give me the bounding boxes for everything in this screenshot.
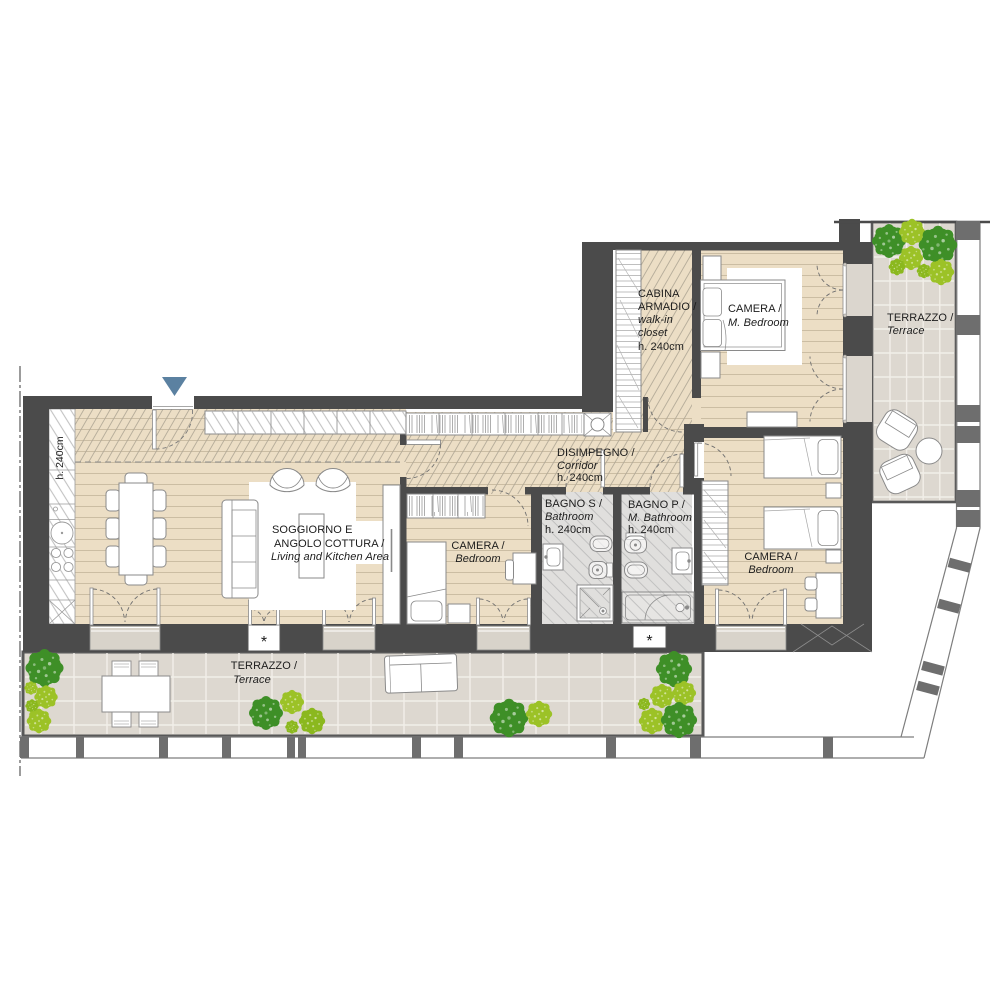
svg-text:Corridor: Corridor — [557, 460, 599, 472]
svg-text:ANGOLO COTTURA /: ANGOLO COTTURA / — [274, 538, 385, 550]
svg-text:CAMERA /: CAMERA / — [744, 551, 798, 563]
svg-text:h. 240cm: h. 240cm — [638, 341, 684, 353]
svg-text:M. Bedroom: M. Bedroom — [728, 317, 789, 329]
svg-text:Bedroom: Bedroom — [748, 564, 793, 576]
svg-text:CABINA: CABINA — [638, 288, 680, 300]
svg-text:Bedroom: Bedroom — [455, 553, 500, 565]
svg-text:h. 240cm: h. 240cm — [545, 524, 591, 536]
svg-text:Terrace: Terrace — [887, 325, 925, 337]
svg-text:closet: closet — [638, 327, 668, 339]
svg-text:h. 240cm: h. 240cm — [557, 472, 603, 484]
svg-text:Living and Kitchen Area: Living and Kitchen Area — [271, 551, 389, 563]
svg-text:SOGGIORNO E: SOGGIORNO E — [272, 524, 353, 536]
svg-text:M. Bathroom: M. Bathroom — [628, 512, 692, 524]
svg-text:*: * — [646, 633, 652, 650]
svg-text:*: * — [261, 634, 267, 651]
svg-text:Bathroom: Bathroom — [545, 511, 594, 523]
svg-text:Terrace: Terrace — [233, 674, 271, 686]
svg-text:BAGNO S /: BAGNO S / — [545, 498, 603, 510]
svg-text:h. 240cm: h. 240cm — [628, 524, 674, 536]
svg-text:walk-in: walk-in — [638, 314, 673, 326]
svg-text:CAMERA /: CAMERA / — [728, 303, 782, 315]
svg-text:TERRAZZO /: TERRAZZO / — [231, 660, 298, 672]
svg-text:CAMERA /: CAMERA / — [451, 540, 505, 552]
svg-text:TERRAZZO /: TERRAZZO / — [887, 312, 954, 324]
svg-text:DISIMPEGNO /: DISIMPEGNO / — [557, 447, 635, 459]
svg-text:BAGNO P /: BAGNO P / — [628, 499, 686, 511]
svg-text:h. 240cm: h. 240cm — [54, 436, 66, 479]
svg-text:ARMADIO /: ARMADIO / — [638, 301, 697, 313]
